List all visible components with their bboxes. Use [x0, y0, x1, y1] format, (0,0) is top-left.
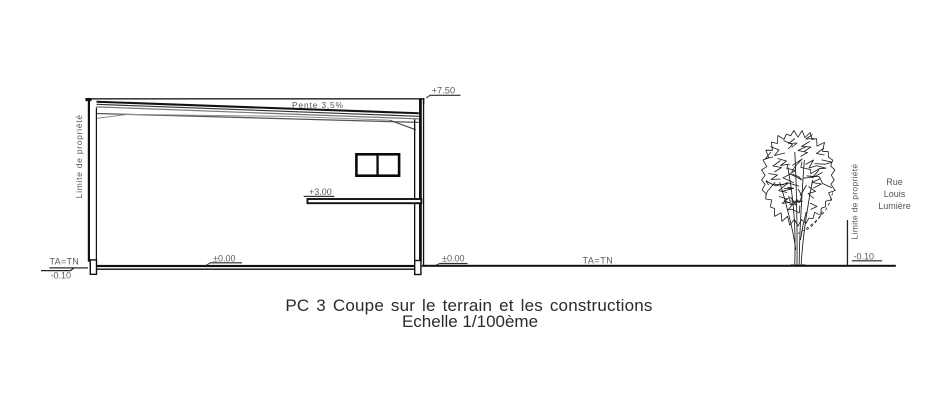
svg-text:Echelle 1/100ème: Echelle 1/100ème	[402, 312, 538, 331]
svg-text:TA=TN: TA=TN	[583, 256, 614, 266]
svg-text:TA=TN: TA=TN	[50, 257, 80, 267]
svg-text:+7.50: +7.50	[432, 85, 456, 95]
svg-text:Limite de propriété: Limite de propriété	[850, 164, 860, 240]
svg-text:±0.00: ±0.00	[213, 253, 235, 263]
svg-text:±0.00: ±0.00	[442, 253, 464, 263]
svg-text:Louis: Louis	[884, 189, 906, 199]
svg-text:-0.10: -0.10	[51, 271, 72, 281]
svg-text:+3.00: +3.00	[309, 187, 332, 197]
svg-text:-0.10: -0.10	[854, 252, 875, 262]
svg-text:Pente 3,5%: Pente 3,5%	[292, 100, 344, 110]
svg-text:Lumière: Lumière	[878, 201, 911, 211]
svg-text:Limite de propriété: Limite de propriété	[74, 114, 84, 198]
svg-text:Rue: Rue	[886, 177, 903, 187]
